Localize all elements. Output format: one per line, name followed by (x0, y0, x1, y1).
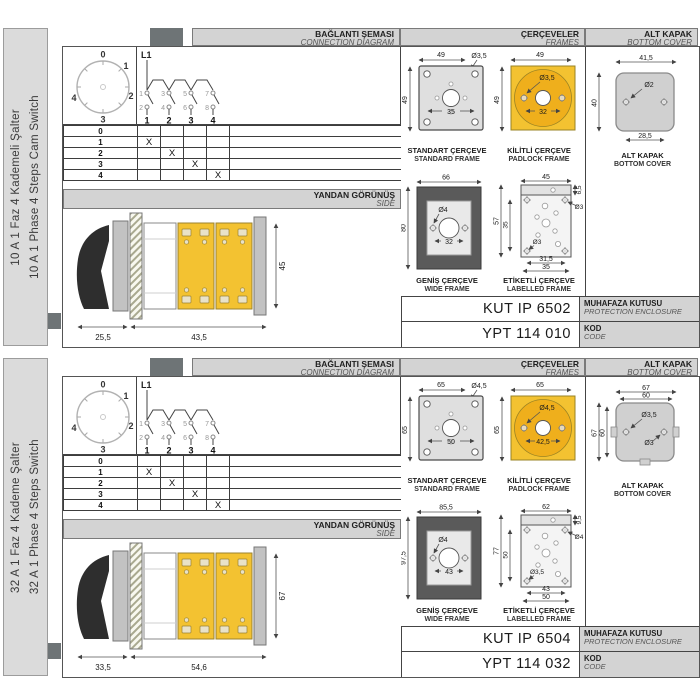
mark-cell: X (138, 467, 161, 478)
dim-label-height: 97,5 (401, 551, 408, 565)
label-en: PROTECTION ENCLOSURE (584, 638, 699, 646)
dim-label-b2: 35 (542, 264, 550, 271)
dial-drawing: 0 1 2 3 4 (63, 377, 137, 455)
dim-label-b1: 31,5 (539, 256, 553, 263)
position-cell: 4 (64, 170, 138, 181)
mark-cell (207, 489, 230, 500)
standard-frame-drawing: 65 Ø4,5 65 50 (401, 379, 493, 477)
frame-caption: ETİKETLİ ÇERÇEVE LABELLED FRAME (503, 607, 575, 624)
switch-position-dial: 0 1 2 3 4 (63, 377, 137, 455)
header-title-en: SIDE (64, 530, 395, 538)
mark-cell (161, 159, 184, 170)
output-number: 1 (144, 446, 149, 456)
contact-number: 8 (205, 105, 209, 112)
frames-header: ÇERÇEVELER FRAMES (400, 28, 585, 46)
mark-cell (138, 478, 161, 489)
spacer-cell (230, 478, 402, 489)
frame-caption: STANDART ÇERÇEVE STANDARD FRAME (407, 477, 486, 494)
table-row: 2 X (64, 478, 402, 489)
mark-cell: X (207, 500, 230, 511)
output-number: 1 (144, 116, 149, 126)
contact-number: 4 (161, 105, 165, 112)
dim-label-hole: Ø3,5 (539, 75, 554, 82)
schematic-drawing: L1 1 2 1 3 4 2 5 6 3 (137, 47, 401, 125)
dim-label-top: 62 (542, 504, 550, 511)
dim-label-hole1: Ø3,5 (641, 412, 656, 419)
caption-en: WIDE FRAME (416, 286, 478, 294)
contact-number: 2 (139, 435, 143, 442)
position-cell: 0 (64, 456, 138, 467)
cam-switch-side-view: 67 33,5 54,6 (63, 539, 313, 677)
frames-panel: 49 Ø3,5 49 35 STANDART ÇERÇEVE (401, 47, 586, 296)
spacer-cell (230, 148, 402, 159)
enclosure-row: KUT IP 6502 MUHAFAZA KUTUSU PROTECTION E… (402, 297, 699, 322)
dim-label-hole: Ø4,5 (471, 383, 486, 390)
caption-tr: ETİKETLİ ÇERÇEVE (503, 607, 575, 616)
dim-label-hole-right: Ø3 (575, 204, 584, 211)
dim-label-hole-right: Ø4 (575, 534, 584, 541)
dim-label-width: 85,5 (439, 505, 453, 512)
mark-cell (138, 159, 161, 170)
wide-frame-cell: 85,5 97,5 Ø4 43 GENİŞ ÇERÇEVE WID (401, 501, 493, 626)
dim-label-inner: 42,5 (536, 439, 550, 446)
mark-cell (161, 456, 184, 467)
enclosure-code: KUT IP 6504 (402, 627, 579, 651)
dial-position-label: 1 (123, 391, 128, 401)
side-label-strip: 10 A 1 Faz 4 Kademeli Şalter 10 A 1 Phas… (3, 28, 48, 346)
dim-label-b2: 50 (542, 594, 550, 601)
dim-label-width: 65 (437, 382, 445, 389)
connection-schematic: L1 1 2 1 3 4 2 5 6 3 (137, 47, 401, 125)
mark-cell (161, 500, 184, 511)
connection-diagram-header: BAĞLANTI ŞEMASI CONNECTION DIAGRAM (192, 28, 400, 46)
mark-cell (184, 467, 207, 478)
dim-label-inner: 43 (445, 569, 453, 576)
dim-label-handle: 25,5 (95, 333, 111, 342)
dial-position-label: 4 (71, 93, 76, 103)
wide-frame-cell: 66 80 Ø4 32 GENİŞ ÇERÇEVE WIDE FR (401, 171, 493, 296)
frame-caption: GENİŞ ÇERÇEVE WIDE FRAME (416, 277, 478, 294)
table-row: 1 X (64, 137, 402, 148)
caption-en: LABELLED FRAME (503, 616, 575, 624)
dim-label-height: 65 (402, 426, 409, 434)
caption-tr: KİLİTLİ ÇERÇEVE (507, 147, 571, 156)
contact-number: 1 (139, 91, 143, 98)
dim-label-height: 65 (494, 426, 501, 434)
table-row: 0 (64, 456, 402, 467)
table-row: 0 (64, 126, 402, 137)
contact-number: 6 (183, 105, 187, 112)
caption-en: PADLOCK FRAME (507, 156, 571, 164)
frame-caption: STANDART ÇERÇEVE STANDARD FRAME (407, 147, 486, 164)
spacer-cell (230, 126, 402, 137)
dim-label-inner: 50 (447, 439, 455, 446)
contact-number: 5 (183, 421, 187, 428)
output-number: 3 (188, 446, 193, 456)
mark-cell (184, 170, 207, 181)
mark-cell (161, 467, 184, 478)
dim-label-inner: 32 (539, 109, 547, 116)
mark-cell (207, 159, 230, 170)
caption-tr: KİLİTLİ ÇERÇEVE (507, 477, 571, 486)
caption-tr: GENİŞ ÇERÇEVE (416, 607, 478, 616)
frame-caption: KİLİTLİ ÇERÇEVE PADLOCK FRAME (507, 147, 571, 164)
caption-en: LABELLED FRAME (503, 286, 575, 294)
caption-tr: ALT KAPAK (586, 152, 699, 161)
spacer-cell (230, 467, 402, 478)
bottom-cover-panel: 67 60 67 60 Ø3,5 (586, 377, 699, 626)
code-label: KOD CODE (579, 652, 699, 677)
mark-cell (138, 170, 161, 181)
dim-label-inner-v: 35 (503, 221, 510, 229)
switching-table: 0 1 X 2 X (63, 455, 401, 511)
code-row: YPT 114 010 KOD CODE (402, 322, 699, 347)
contact-number: 2 (139, 105, 143, 112)
dim-label-w-out: 67 (642, 385, 650, 392)
frames-panel: 65 Ø4,5 65 50 STANDART ÇERÇEVE (401, 377, 586, 626)
dim-label-hole-left: Ø3,5 (530, 569, 544, 576)
dim-label-w-in: 60 (642, 393, 650, 400)
product-code: YPT 114 010 (402, 322, 579, 347)
dim-label-w-out: 41,5 (639, 55, 653, 62)
position-cell: 1 (64, 467, 138, 478)
mark-cell (207, 137, 230, 148)
side-view-header: YANDAN GÖRÜNÜŞ SIDE (63, 189, 401, 209)
dim-label-hole: Ø4,5 (539, 405, 554, 412)
mark-cell (161, 489, 184, 500)
contact-number: 4 (161, 435, 165, 442)
spacer-cell (230, 489, 402, 500)
mark-cell: X (138, 137, 161, 148)
bottom-cover-panel: 41,5 40 Ø2 (586, 47, 699, 296)
dim-label-h-out: 40 (592, 99, 599, 107)
position-cell: 2 (64, 478, 138, 489)
mark-cell (207, 456, 230, 467)
mark-cell (207, 478, 230, 489)
caption-en: WIDE FRAME (416, 616, 478, 624)
mark-cell (161, 126, 184, 137)
dim-label-h-in: 60 (600, 429, 607, 437)
frame-caption: ETİKETLİ ÇERÇEVE LABELLED FRAME (503, 277, 575, 294)
bottom-cover-header: ALT KAPAK BOTTOM COVER (585, 28, 698, 46)
caption-tr: ETİKETLİ ÇERÇEVE (503, 277, 575, 286)
side-view-drawing: 45 25,5 43,5 (63, 209, 401, 347)
mark-cell (207, 467, 230, 478)
dim-label-height: 45 (278, 261, 287, 270)
codes-table: KUT IP 6502 MUHAFAZA KUTUSU PROTECTION E… (401, 296, 699, 347)
dial-position-label: 0 (100, 380, 105, 390)
dim-label-body: 54,6 (191, 663, 207, 672)
output-number: 2 (166, 446, 171, 456)
mounting-plate (130, 213, 142, 319)
table-row: 4 X (64, 500, 402, 511)
dim-label-width: 66 (442, 175, 450, 182)
dial-position-label: 0 (100, 50, 105, 60)
side-label-turkish: 10 A 1 Faz 4 Kademeli Şalter (10, 109, 22, 266)
position-cell: 1 (64, 137, 138, 148)
header-title-en: SIDE (64, 200, 395, 208)
caption-tr: ALT KAPAK (586, 482, 699, 491)
side-view-drawing: 67 33,5 54,6 (63, 539, 401, 677)
mark-cell (184, 148, 207, 159)
section-body: 0 1 2 3 4 L1 1 2 1 3 (62, 46, 700, 348)
phase-label: L1 (141, 380, 152, 390)
dim-label-height: 49 (402, 96, 409, 104)
bottom-cover-caption: ALT KAPAK BOTTOM COVER (586, 482, 699, 499)
contact-number: 7 (205, 421, 209, 428)
table-row: 3 X (64, 489, 402, 500)
dim-label-hole: Ø3,5 (471, 53, 486, 60)
dim-label-hole1: Ø2 (644, 82, 653, 89)
mark-cell (161, 137, 184, 148)
dim-label-body: 43,5 (191, 333, 207, 342)
switch-position-dial: 0 1 2 3 4 (63, 47, 137, 125)
dim-label-strip: 9,5 (576, 515, 583, 524)
standard-frame-cell: 65 Ø4,5 65 50 STANDART ÇERÇEVE (401, 377, 493, 501)
padlock-frame-cell: 65 65 Ø4,5 42,5 KİLİTLİ ÇERÇEVE P (493, 377, 585, 501)
dial-position-label: 4 (71, 423, 76, 433)
dial-position-label: 2 (128, 91, 133, 101)
mark-cell (138, 489, 161, 500)
contact-number: 8 (205, 435, 209, 442)
labelled-frame-cell: 45 6,5 57 35 (493, 171, 585, 296)
mark-cell (184, 478, 207, 489)
dim-label-hole: Ø4 (438, 207, 447, 214)
position-cell: 3 (64, 489, 138, 500)
dial-position-label: 2 (128, 421, 133, 431)
dim-label-height: 57 (494, 217, 501, 225)
index-tab-small (48, 643, 61, 659)
caption-en: BOTTOM COVER (586, 491, 699, 499)
dim-label-inner: 32 (445, 239, 453, 246)
switch-handle (77, 225, 109, 309)
code-label: KOD CODE (579, 322, 699, 347)
label-en: CODE (584, 333, 699, 341)
mark-cell (207, 126, 230, 137)
connection-diagram-header: BAĞLANTI ŞEMASI CONNECTION DIAGRAM (192, 358, 400, 376)
caption-en: STANDARD FRAME (407, 156, 486, 164)
dial-position-label: 3 (100, 445, 105, 455)
bottom-cover-header: ALT KAPAK BOTTOM COVER (585, 358, 698, 376)
header-title-tr: YANDAN GÖRÜNÜŞ (64, 521, 395, 530)
labelled-frame-drawing: 45 6,5 57 35 (493, 173, 585, 277)
enclosure-row: KUT IP 6504 MUHAFAZA KUTUSU PROTECTION E… (402, 627, 699, 652)
mark-cell: X (184, 159, 207, 170)
dim-label-h-out: 67 (592, 429, 599, 437)
phase-label: L1 (141, 50, 152, 60)
dim-label-width: 49 (536, 52, 544, 59)
labelled-frame-cell: 62 9,5 77 50 (493, 501, 585, 626)
frames-header: ÇERÇEVELER FRAMES (400, 358, 585, 376)
contact-number: 3 (161, 91, 165, 98)
side-view-header: YANDAN GÖRÜNÜŞ SIDE (63, 519, 401, 539)
section-body: 0 1 2 3 4 L1 1 2 1 3 (62, 376, 700, 678)
standard-frame-cell: 49 Ø3,5 49 35 STANDART ÇERÇEVE (401, 47, 493, 171)
code-row: YPT 114 032 KOD CODE (402, 652, 699, 677)
caption-tr: GENİŞ ÇERÇEVE (416, 277, 478, 286)
connection-schematic: L1 1 2 1 3 4 2 5 6 3 (137, 377, 401, 455)
label-en: CODE (584, 663, 699, 671)
mark-cell: X (207, 170, 230, 181)
enclosure-label: MUHAFAZA KUTUSU PROTECTION ENCLOSURE (579, 627, 699, 651)
wide-frame-drawing: 66 80 Ø4 32 (401, 173, 493, 277)
mark-cell (138, 148, 161, 159)
mark-cell (184, 126, 207, 137)
position-cell: 4 (64, 500, 138, 511)
spacer-cell (230, 170, 402, 181)
position-cell: 3 (64, 159, 138, 170)
mark-cell (184, 137, 207, 148)
caption-en: PADLOCK FRAME (507, 486, 571, 494)
dial-drawing: 0 1 2 3 4 (63, 47, 137, 125)
index-tab (150, 28, 183, 46)
mark-cell (207, 148, 230, 159)
side-label-strip: 32 A 1 Faz 4 Kademe Şalter 32 A 1 Phase … (3, 358, 48, 676)
dim-label-top: 45 (542, 174, 550, 181)
label-en: PROTECTION ENCLOSURE (584, 308, 699, 316)
dim-label-b1: 43 (542, 586, 550, 593)
frame-caption: GENİŞ ÇERÇEVE WIDE FRAME (416, 607, 478, 624)
dial-position-label: 1 (123, 61, 128, 71)
dim-label-bottom: 28,5 (638, 133, 652, 140)
side-label-turkish: 32 A 1 Faz 4 Kademe Şalter (10, 442, 22, 593)
output-number: 4 (210, 446, 215, 456)
contact-number: 7 (205, 91, 209, 98)
enclosure-label: MUHAFAZA KUTUSU PROTECTION ENCLOSURE (579, 297, 699, 321)
dim-label-handle: 33,5 (95, 663, 111, 672)
dim-label-inner: 35 (447, 109, 455, 116)
mark-cell (184, 456, 207, 467)
mark-cell (138, 456, 161, 467)
spacer-cell (230, 159, 402, 170)
dial-position-label: 3 (100, 115, 105, 125)
wide-frame-drawing: 85,5 97,5 Ø4 43 (401, 503, 493, 607)
schematic-drawing: L1 1 2 1 3 4 2 5 6 3 (137, 377, 401, 455)
standard-frame-drawing: 49 Ø3,5 49 35 (401, 49, 493, 147)
bottom-cover-drawing: 67 60 67 60 Ø3,5 (586, 385, 699, 477)
padlock-frame-cell: 49 49 Ø3,5 32 KİLİTLİ ÇERÇEVE PAD (493, 47, 585, 171)
dim-label-strip: 6,5 (576, 185, 583, 194)
table-row: 1 X (64, 467, 402, 478)
contact-number: 6 (183, 435, 187, 442)
mark-cell (184, 500, 207, 511)
spacer-cell (230, 500, 402, 511)
product-code: YPT 114 032 (402, 652, 579, 677)
dim-label-height: 67 (278, 591, 287, 600)
mark-cell (138, 126, 161, 137)
mark-cell: X (184, 489, 207, 500)
index-tab-small (48, 313, 61, 329)
header-title-tr: YANDAN GÖRÜNÜŞ (64, 191, 395, 200)
spacer-cell (230, 456, 402, 467)
product-section: 32 A 1 Faz 4 Kademe Şalter 32 A 1 Phase … (0, 358, 700, 676)
product-section: 10 A 1 Faz 4 Kademeli Şalter 10 A 1 Phas… (0, 28, 700, 346)
padlock-frame-drawing: 65 65 Ø4,5 42,5 (493, 379, 585, 477)
position-cell: 0 (64, 126, 138, 137)
table-row: 3 X (64, 159, 402, 170)
dim-label-hole-left: Ø3 (533, 239, 542, 246)
dim-label-width: 65 (536, 382, 544, 389)
output-number: 4 (210, 116, 215, 126)
mark-cell: X (161, 148, 184, 159)
dim-label-hole2: Ø3 (644, 440, 653, 447)
output-number: 3 (188, 116, 193, 126)
mounting-plate (130, 543, 142, 649)
position-cell: 2 (64, 148, 138, 159)
contact-number: 5 (183, 91, 187, 98)
index-tab (150, 358, 183, 376)
dim-label-width: 49 (437, 52, 445, 59)
caption-en: BOTTOM COVER (586, 161, 699, 169)
frame-caption: KİLİTLİ ÇERÇEVE PADLOCK FRAME (507, 477, 571, 494)
side-label-english: 32 A 1 Phase 4 Steps Switch (29, 439, 41, 594)
dim-label-inner-v: 50 (503, 551, 510, 559)
dim-label-hole: Ø4 (438, 537, 447, 544)
table-row: 4 X (64, 170, 402, 181)
dim-label-height: 80 (401, 224, 408, 232)
caption-en: STANDARD FRAME (407, 486, 486, 494)
contact-number: 3 (161, 421, 165, 428)
bottom-cover-caption: ALT KAPAK BOTTOM COVER (586, 152, 699, 169)
labelled-frame-drawing: 62 9,5 77 50 (493, 503, 585, 607)
mark-cell: X (161, 478, 184, 489)
spacer-cell (230, 137, 402, 148)
mark-cell (161, 170, 184, 181)
bottom-cover-drawing: 41,5 40 Ø2 (586, 55, 699, 147)
dim-label-height: 77 (494, 547, 501, 555)
contact-number: 1 (139, 421, 143, 428)
dim-label-height: 49 (494, 96, 501, 104)
mark-cell (138, 500, 161, 511)
cam-switch-side-view: 45 25,5 43,5 (63, 209, 313, 347)
caption-tr: STANDART ÇERÇEVE (407, 147, 486, 156)
table-row: 2 X (64, 148, 402, 159)
caption-tr: STANDART ÇERÇEVE (407, 477, 486, 486)
switch-handle (77, 555, 109, 639)
switching-table: 0 1 X 2 X (63, 125, 401, 181)
padlock-frame-drawing: 49 49 Ø3,5 32 (493, 49, 585, 147)
codes-table: KUT IP 6504 MUHAFAZA KUTUSU PROTECTION E… (401, 626, 699, 677)
enclosure-code: KUT IP 6502 (402, 297, 579, 321)
output-number: 2 (166, 116, 171, 126)
side-label-english: 10 A 1 Phase 4 Steps Cam Switch (29, 95, 41, 279)
